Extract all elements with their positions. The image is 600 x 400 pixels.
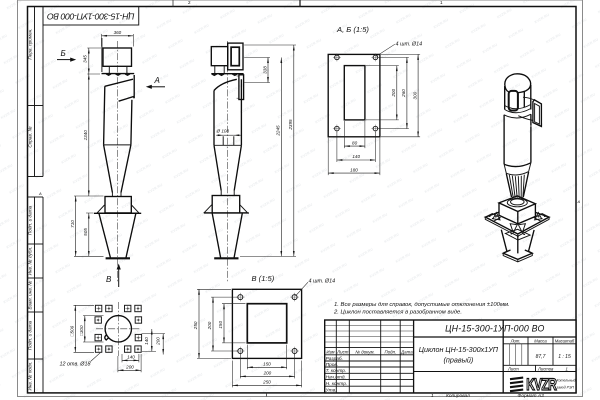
svg-text:Масса: Масса (534, 339, 547, 344)
svg-text:Формат А3: Формат А3 (518, 393, 545, 399)
svg-text:Подп.: Подп. (385, 350, 397, 355)
svg-text:1: 1 (566, 366, 568, 371)
svg-text:Ø 108: Ø 108 (216, 129, 230, 134)
svg-text:2: 2 (188, 0, 191, 5)
svg-text:200: 200 (125, 365, 134, 370)
svg-text:Взам. инв. №: Взам. инв. № (28, 281, 33, 310)
svg-text:300: 300 (412, 91, 417, 99)
svg-text:2245: 2245 (276, 125, 281, 137)
svg-text:Подп. и дата: Подп. и дата (28, 205, 33, 235)
svg-text:№ докум.: № докум. (355, 350, 374, 355)
svg-text:Масштаб: Масштаб (555, 339, 575, 344)
svg-text:80: 80 (352, 140, 358, 145)
svg-text:Т. контр.: Т. контр. (326, 368, 347, 374)
svg-text:Перв. примен.: Перв. примен. (28, 28, 33, 59)
svg-text:Нач.отд.: Нач.отд. (326, 375, 346, 381)
svg-text:Листов: Листов (537, 366, 554, 371)
svg-text:А: А (154, 76, 160, 85)
svg-text:□506: □506 (70, 325, 75, 336)
svg-text:Лит.: Лит. (510, 339, 521, 344)
svg-text:505: 505 (83, 228, 88, 236)
svg-text:260: 260 (401, 89, 406, 98)
svg-text:140: 140 (352, 154, 360, 159)
svg-text:KVZR: KVZR (526, 376, 557, 394)
svg-text:140: 140 (144, 337, 149, 345)
svg-text:□300: □300 (79, 325, 84, 336)
svg-text:Дата: Дата (400, 350, 413, 355)
svg-text:180: 180 (350, 167, 358, 172)
svg-text:В (1:5): В (1:5) (252, 274, 275, 283)
svg-text:ЦН-15-300-1УП-000 ВО: ЦН-15-300-1УП-000 ВО (445, 323, 544, 333)
svg-text:1 : 15: 1 : 15 (558, 354, 571, 360)
svg-text:1340: 1340 (83, 130, 88, 141)
svg-text:А: А (38, 191, 42, 196)
svg-text:Разраб.: Разраб. (326, 356, 343, 362)
svg-text:Справ. №: Справ. № (28, 126, 33, 147)
svg-text:В: В (106, 275, 112, 284)
svg-text:Копировал: Копировал (446, 393, 470, 399)
svg-text:1: 1 (431, 393, 434, 399)
svg-text:87,7: 87,7 (536, 354, 546, 360)
svg-text:250: 250 (193, 321, 198, 330)
svg-text:Утв.: Утв. (326, 388, 337, 394)
svg-text:4 шт. Ø14: 4 шт. Ø14 (396, 41, 423, 47)
svg-text:Н. контр.: Н. контр. (326, 381, 348, 387)
svg-text:12 отв. Ø18: 12 отв. Ø18 (60, 362, 91, 368)
svg-text:Изм: Изм (326, 350, 334, 355)
svg-text:Лист: Лист (336, 350, 349, 355)
svg-text:Циклон ЦН-15-300х1УП: Циклон ЦН-15-300х1УП (419, 345, 499, 354)
svg-text:Инв. № дубл.: Инв. № дубл. (28, 247, 33, 276)
svg-text:Пров.: Пров. (326, 362, 339, 368)
svg-text:338: 338 (262, 66, 267, 74)
svg-text:1. Все размеры для справок, до: 1. Все размеры для справок, допустимые о… (334, 302, 510, 308)
svg-text:1: 1 (440, 0, 443, 5)
svg-text:А, Б (1:5): А, Б (1:5) (336, 25, 369, 34)
svg-text:250: 250 (262, 380, 271, 385)
svg-text:200: 200 (391, 89, 396, 98)
svg-text:Б: Б (61, 49, 66, 58)
svg-text:А: А (577, 199, 581, 204)
svg-text:4 шт. Ø14: 4 шт. Ø14 (309, 279, 336, 285)
svg-text:ЦН-15-300-1УП-000 ВО: ЦН-15-300-1УП-000 ВО (47, 12, 135, 22)
svg-text:150: 150 (263, 362, 271, 367)
svg-text:2. Циклон поставляется в разоб: 2. Циклон поставляется в разобранном вид… (333, 310, 462, 316)
svg-text:710: 710 (70, 220, 75, 228)
svg-text:(правый): (правый) (444, 356, 474, 365)
svg-text:Подп. и дата: Подп. и дата (28, 320, 33, 350)
svg-text:200: 200 (155, 337, 160, 346)
svg-text:150: 150 (218, 321, 223, 329)
svg-text:2395: 2395 (288, 119, 293, 131)
svg-text:завод РЭП: завод РЭП (556, 386, 575, 390)
svg-text:Котельный: Котельный (557, 379, 576, 383)
svg-text:360: 360 (114, 30, 122, 35)
svg-text:345: 345 (83, 55, 88, 63)
svg-text:200: 200 (263, 371, 272, 376)
svg-text:200: 200 (207, 321, 212, 330)
svg-text:140: 140 (127, 355, 135, 360)
svg-text:Лист: Лист (507, 366, 519, 371)
svg-text:Инв. № подл.: Инв. № подл. (28, 361, 33, 390)
